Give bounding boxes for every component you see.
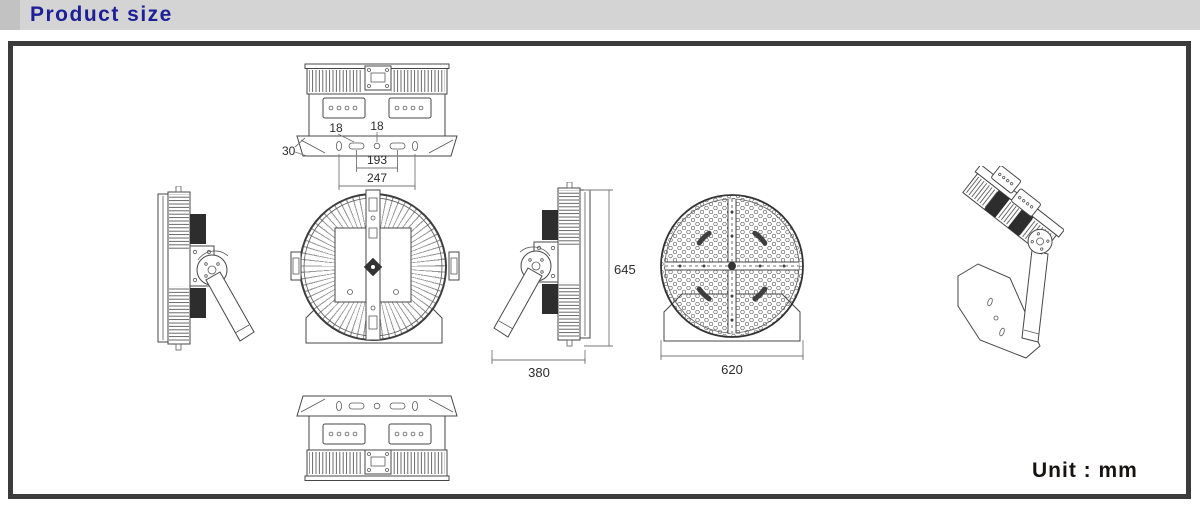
side-view-left-drawing <box>156 186 268 352</box>
side-view-right-body <box>494 182 590 346</box>
side-view-left-body <box>158 186 254 350</box>
bottom-view-body <box>297 396 457 481</box>
dimension-645: 645 <box>584 190 636 346</box>
svg-text:18: 18 <box>329 121 343 135</box>
front-view-body <box>661 195 803 337</box>
header-accent-block <box>0 0 20 30</box>
header-bar: Product size <box>0 0 1200 30</box>
top-view-drawing: 18 18 30 193 247 <box>281 60 473 194</box>
unit-label: Unit : mm <box>1032 459 1138 483</box>
top-view-body <box>297 64 457 156</box>
dimension-620: 620 <box>661 340 803 377</box>
back-view-details <box>290 182 460 348</box>
dimension-380: 380 <box>492 350 585 380</box>
isometric-body <box>959 166 1064 258</box>
svg-text:30: 30 <box>282 144 296 158</box>
isometric-arm <box>1022 250 1048 342</box>
page-title: Product size <box>30 0 173 30</box>
svg-text:193: 193 <box>367 153 387 167</box>
side-view-right-drawing: 645 380 <box>486 182 638 380</box>
svg-text:380: 380 <box>528 365 550 380</box>
svg-text:645: 645 <box>614 262 636 277</box>
page: Product size <box>0 0 1200 508</box>
isometric-view-drawing <box>938 166 1064 362</box>
svg-text:620: 620 <box>721 362 743 377</box>
back-view-drawing <box>290 182 460 348</box>
svg-text:18: 18 <box>370 119 384 133</box>
bottom-view-drawing <box>281 388 473 492</box>
front-view-drawing: 620 <box>650 182 820 380</box>
